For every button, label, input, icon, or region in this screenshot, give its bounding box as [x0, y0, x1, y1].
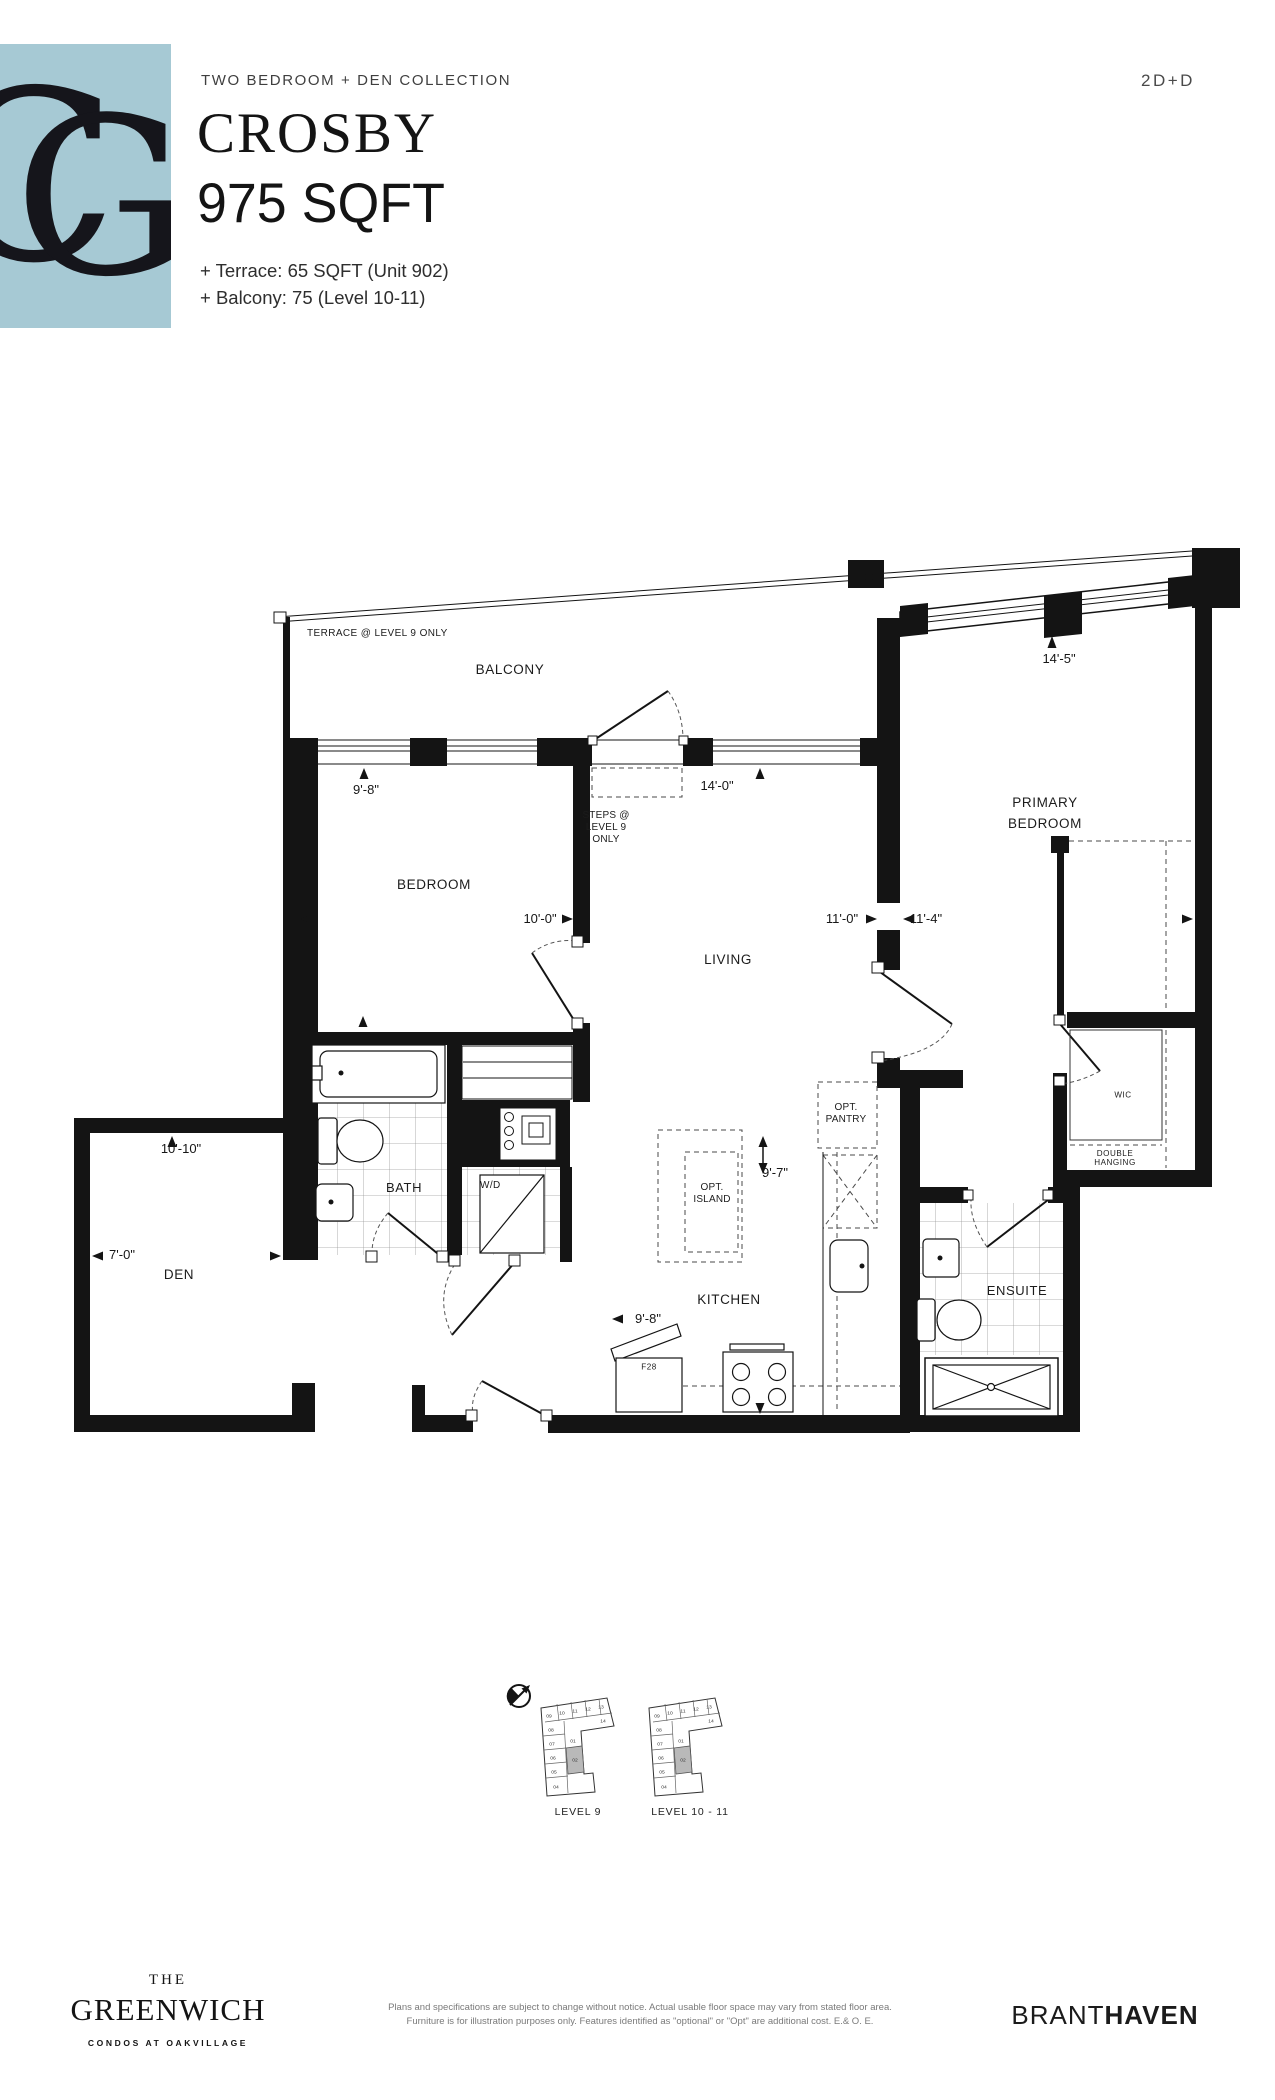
unit-number: 01: [678, 1738, 684, 1744]
unit-number: 14: [600, 1718, 606, 1724]
label-washer-dryer: W/D: [480, 1180, 501, 1191]
dim-kitchen-width: 9'-8": [635, 1311, 661, 1326]
room-label-living: LIVING: [704, 952, 752, 967]
unit-number: 12: [585, 1706, 591, 1712]
unit-number: 10: [559, 1710, 565, 1716]
room-label-wic: WIC: [1114, 1091, 1131, 1100]
note-terrace: TERRACE @ LEVEL 9 ONLY: [307, 628, 448, 639]
unit-number: 07: [549, 1741, 555, 1747]
footer-brand-the: THE: [149, 1972, 187, 1989]
label-fridge: F28: [641, 1363, 657, 1372]
unit-number: 08: [548, 1727, 554, 1733]
room-label-kitchen: KITCHEN: [697, 1292, 760, 1307]
dim-den-width: 10'-10": [161, 1141, 201, 1156]
bath-toilet-icon: [318, 1118, 383, 1164]
unit-number: 10: [667, 1710, 673, 1716]
dim-kitchen-depth: 9'-7": [762, 1165, 788, 1180]
unit-number: 14: [708, 1718, 714, 1724]
floorplan-drawing: [0, 0, 1275, 2100]
label-opt-pantry: OPT.PANTRY: [826, 1102, 867, 1126]
floorplan-page: C G TWO BEDROOM + DEN COLLECTION 2D+D CR…: [0, 0, 1275, 2100]
dim-bedroom-width: 10'-0": [523, 911, 556, 926]
unit-number-highlighted: 02: [572, 1757, 578, 1763]
footer-developer-logo: BRANTHAVEN: [1011, 2000, 1198, 2031]
dim-bedroom-window: 9'-8": [353, 782, 379, 797]
unit-number: 06: [658, 1755, 664, 1761]
dim-den-depth: 7'-0": [109, 1247, 135, 1262]
unit-number: 11: [572, 1708, 577, 1714]
unit-number: 04: [553, 1784, 559, 1790]
developer-haven: HAVEN: [1105, 2000, 1199, 2030]
room-label-ensuite: ENSUITE: [987, 1283, 1048, 1298]
compass-icon: [507, 1685, 530, 1707]
unit-number: 09: [546, 1713, 552, 1719]
label-opt-island: OPT.ISLAND: [693, 1182, 730, 1206]
room-label-bedroom: BEDROOM: [397, 877, 471, 892]
room-label-primary-bedroom: PRIMARYBEDROOM: [1008, 792, 1082, 834]
stove-icon: [723, 1344, 793, 1412]
unit-number: 13: [598, 1704, 604, 1710]
walls: [74, 548, 1240, 1433]
unit-number: 13: [706, 1704, 712, 1710]
footer-brand-subtitle: CONDOS AT OAKVILLAGE: [88, 2038, 248, 2048]
unit-number: 06: [550, 1755, 556, 1761]
unit-number: 05: [659, 1769, 665, 1775]
room-label-balcony: BALCONY: [476, 662, 545, 677]
note-steps: STEPS @ LEVEL 9 ONLY: [582, 810, 629, 846]
room-label-den: DEN: [164, 1267, 194, 1282]
unit-number-highlighted: 02: [680, 1757, 686, 1763]
developer-brant: BRANT: [1011, 2000, 1104, 2030]
bathtub-icon: [312, 1045, 445, 1103]
keyplan-level9: 09 10 11 12 13 14 08 07 06 05 04 01 02: [535, 1692, 630, 1802]
footer-disclaimer-line1: Plans and specifications are subject to …: [388, 2002, 892, 2013]
unit-number: 04: [661, 1784, 667, 1790]
footer-brand-name: GREENWICH: [71, 1992, 266, 2028]
keyplan-label-level10-11: LEVEL 10 - 11: [651, 1806, 729, 1818]
unit-number: 12: [693, 1706, 699, 1712]
ensuite-toilet-icon: [917, 1299, 981, 1341]
keyplan-level10-11: 09 10 11 12 13 14 08 07 06 05 04 01 02: [643, 1692, 738, 1802]
primary-window-band: [900, 575, 1195, 638]
dim-living-width: 11'-0": [826, 911, 858, 926]
unit-number: 05: [551, 1769, 557, 1775]
unit-number: 07: [657, 1741, 663, 1747]
ensuite-sink-icon: [923, 1239, 959, 1277]
unit-number: 11: [680, 1708, 685, 1714]
windows: [318, 575, 1195, 765]
unit-number: 09: [654, 1713, 660, 1719]
dim-primary-width: 11'-4": [910, 911, 942, 926]
bath-sink-icon: [316, 1184, 353, 1221]
room-label-bath: BATH: [386, 1180, 422, 1195]
kitchen-sink-icon: [830, 1240, 868, 1292]
unit-number: 08: [656, 1727, 662, 1733]
shower-icon: [925, 1358, 1058, 1416]
label-double-hanging: DOUBLEHANGING: [1094, 1149, 1136, 1167]
keyplan-label-level9: LEVEL 9: [555, 1806, 602, 1818]
dim-balcony-door: 14'-0": [700, 778, 733, 793]
footer-disclaimer-line2: Furniture is for illustration purposes o…: [407, 2016, 874, 2027]
dim-primary-window: 14'-5": [1042, 651, 1075, 666]
unit-number: 01: [570, 1738, 576, 1744]
